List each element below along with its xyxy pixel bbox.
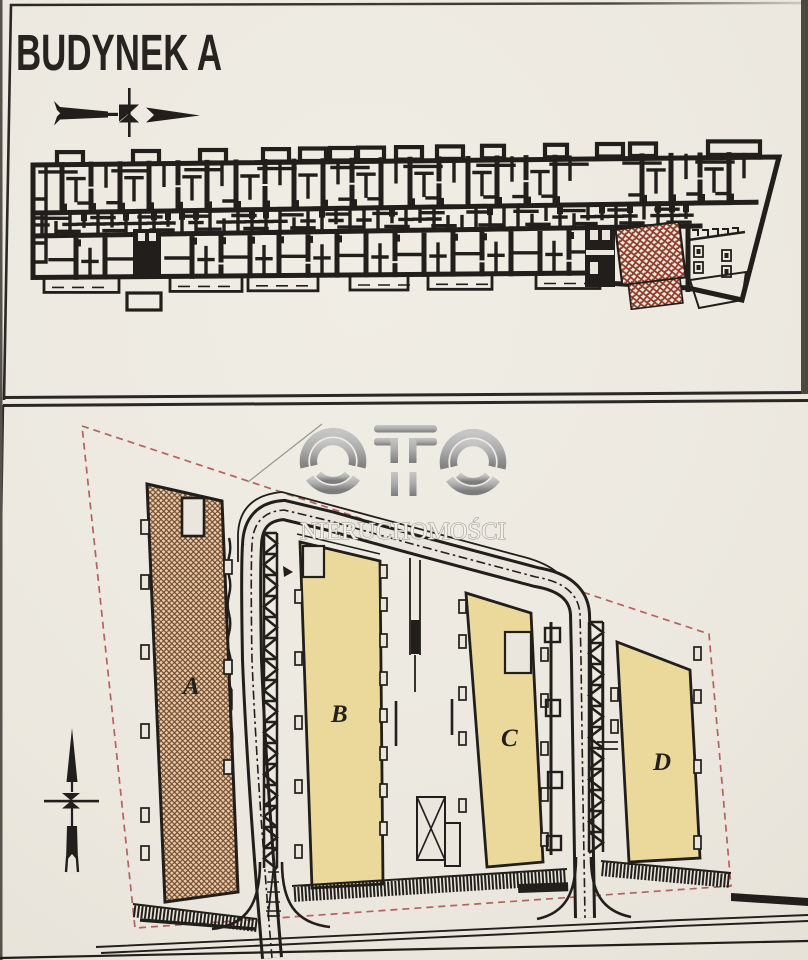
svg-text:C: C bbox=[501, 725, 518, 752]
svg-text:D: D bbox=[652, 749, 671, 776]
svg-text:NIERUCHOMOŚCI: NIERUCHOMOŚCI bbox=[300, 518, 506, 545]
svg-text:A: A bbox=[181, 673, 200, 700]
svg-text:B: B bbox=[330, 701, 348, 728]
svg-text:BUDYNEK A: BUDYNEK A bbox=[16, 24, 222, 81]
